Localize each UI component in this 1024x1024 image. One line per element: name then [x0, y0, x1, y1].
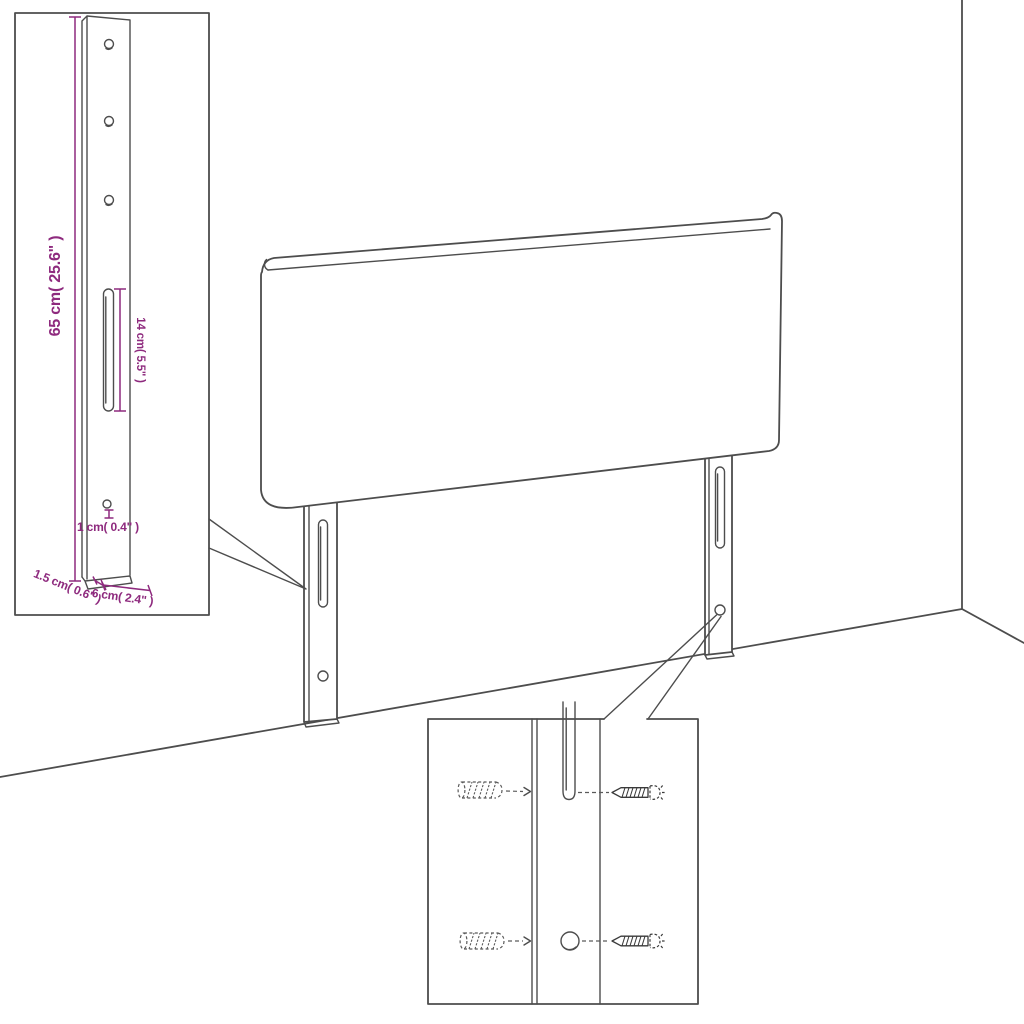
insert-arrow-top [524, 788, 531, 796]
mounting-slot-detail [563, 702, 575, 800]
headboard-right-leg [705, 442, 734, 659]
dimension-line-65cm [69, 17, 81, 581]
callout-wedge-left-leg [209, 519, 306, 589]
leg-hole-1 [105, 40, 114, 49]
leg-hole-2 [105, 117, 114, 126]
headboard-left-leg [304, 494, 339, 727]
insert-arrow-bottom [524, 937, 531, 945]
dimension-14cm-label: 14 cm( 5.5" ) [134, 317, 146, 383]
slot-fixing-row [458, 782, 665, 800]
leg-slot-detail [104, 289, 114, 411]
dimension-line-14cm [114, 289, 126, 411]
leg-hole-3 [105, 196, 114, 205]
dimension-1cm-label: 1 cm( 0.4" ) [77, 520, 139, 534]
wall-plug-top-icon [458, 782, 502, 798]
headboard-panel [261, 213, 782, 508]
leg-dimensions: 65 cm( 25.6" ) 14 cm( 5.5" ) 1 cm( 0.4" … [32, 17, 155, 608]
screw-top-icon [612, 785, 665, 800]
screw-bottom-icon [612, 934, 665, 949]
floor-line-right [962, 609, 1024, 643]
callout-wedge-mount-hole [604, 615, 721, 719]
mounting-leg-strip [532, 702, 600, 1004]
wall-plug-bottom-icon [460, 933, 504, 949]
leg-detail-drawing [82, 16, 132, 589]
headboard-dimension-diagram: 65 cm( 25.6" ) 14 cm( 5.5" ) 1 cm( 0.4" … [0, 0, 1024, 1024]
dimension-line-1cm [105, 510, 114, 518]
dimension-65cm-label: 65 cm( 25.6" ) [47, 236, 64, 337]
leg-mount-hole-detail [103, 500, 111, 508]
inset-leg-detail: 65 cm( 25.6" ) 14 cm( 5.5" ) 1 cm( 0.4" … [15, 13, 209, 615]
inset-mounting-detail [428, 702, 698, 1004]
diagram-canvas: 65 cm( 25.6" ) 14 cm( 5.5" ) 1 cm( 0.4" … [0, 0, 1024, 1024]
floor-line-left [0, 609, 962, 777]
